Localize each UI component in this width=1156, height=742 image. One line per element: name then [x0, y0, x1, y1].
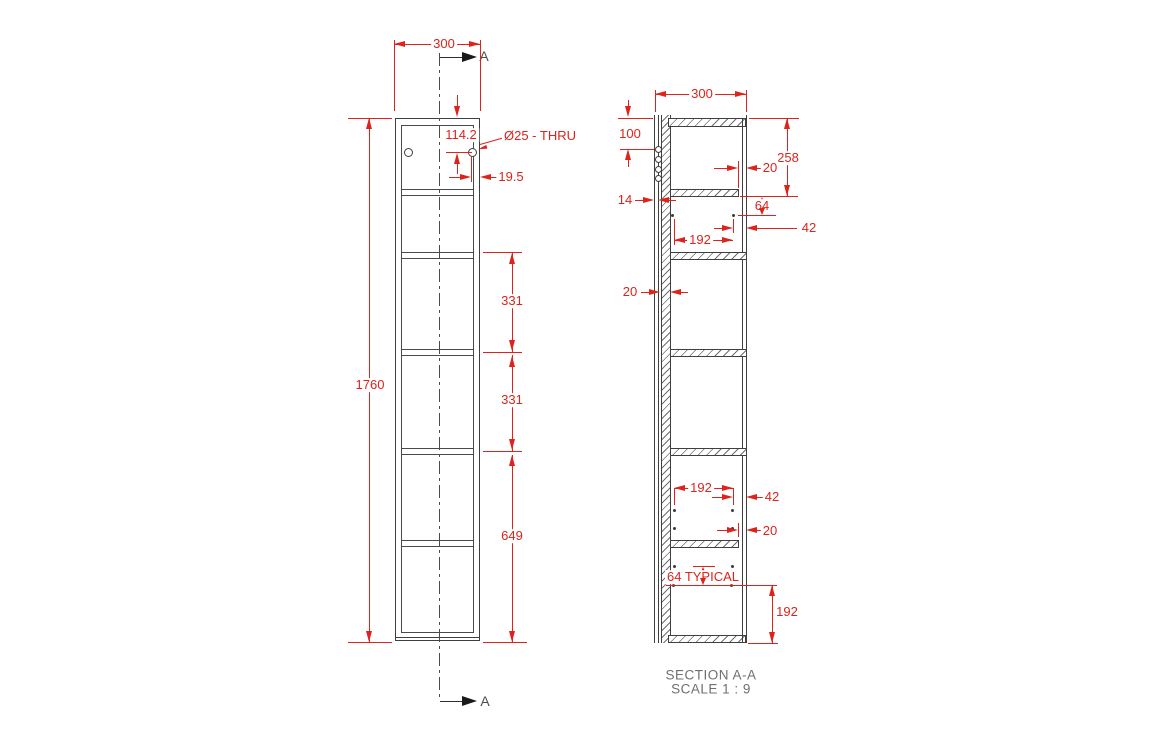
dim-arrow — [746, 527, 757, 533]
section-caption-title: SECTION A-A — [665, 668, 756, 683]
shelf-pin-hole — [731, 565, 734, 568]
dim-back-sheet: 14 — [616, 193, 634, 207]
dim-arrow — [643, 197, 654, 203]
dim-line — [714, 228, 722, 229]
section-back-panel-hatched — [661, 115, 671, 643]
dim-shelf-spacing-1: 331 — [499, 294, 525, 308]
dim-pin-front-upper: 42 — [800, 221, 818, 235]
ref-line — [666, 585, 777, 586]
ext-line — [748, 643, 778, 644]
back-panel-hole — [655, 166, 662, 173]
section-front-edge-line — [742, 118, 744, 643]
dim-arrow — [658, 197, 669, 203]
section-front-edge-line — [746, 115, 748, 643]
ext-line — [480, 40, 481, 111]
dim-arrow — [655, 91, 666, 97]
drawing-canvas: A A 300 1760 114.2 Ø25 - THRU 19.5 331 3… — [0, 0, 1156, 742]
dim-pin-spacing-lower: 192 — [688, 481, 714, 495]
section-shelf-hatched — [670, 252, 747, 260]
ext-line — [483, 642, 527, 643]
dim-hole-offset-top: 114.2 — [443, 128, 479, 142]
ext-line — [483, 252, 522, 253]
shelf-pin-hole — [732, 214, 735, 217]
back-panel-hole — [655, 175, 662, 182]
front-view-bottom-panel-line — [396, 637, 479, 638]
dim-arrow — [480, 174, 491, 180]
dim-arrow — [625, 149, 631, 160]
ext-line — [483, 352, 522, 353]
ext-line — [618, 118, 653, 119]
shelf-pin-hole — [673, 527, 676, 530]
dim-arrow — [509, 340, 515, 351]
dim-arrow — [674, 237, 685, 243]
shelf-pin-hole — [671, 214, 674, 217]
dim-line — [669, 200, 676, 201]
dim-arrow — [722, 494, 733, 500]
dim-pin-front-lower: 42 — [763, 490, 781, 504]
dim-arrow — [769, 632, 775, 643]
dim-arrow — [366, 118, 372, 129]
shelf-pin-hole — [673, 565, 676, 568]
dim-arrow — [469, 41, 480, 47]
back-panel-hole — [655, 156, 662, 163]
dim-arrow — [722, 225, 733, 231]
dim-line — [681, 292, 688, 293]
section-arrow-bottom-icon — [462, 696, 477, 706]
dim-pin-to-bottom: 192 — [774, 605, 800, 619]
dim-front-width: 300 — [431, 37, 457, 51]
ext-line — [394, 40, 395, 111]
dim-arrow — [727, 527, 738, 533]
section-arrow-line-top — [440, 57, 462, 59]
dim-arrow — [769, 585, 775, 596]
mounting-hole-left — [404, 148, 413, 157]
dim-arrow — [509, 439, 515, 450]
dim-arrow — [509, 253, 515, 264]
back-panel-hole — [655, 146, 662, 153]
dim-line — [712, 497, 722, 498]
dim-back-panel: 20 — [621, 285, 639, 299]
dim-front-height: 1760 — [354, 378, 387, 392]
dim-arrow — [674, 485, 685, 491]
dim-arrow — [366, 631, 372, 642]
dim-arrow — [784, 185, 790, 196]
section-label-bottom: A — [479, 694, 490, 708]
ext-line — [483, 451, 522, 452]
ext-line — [674, 488, 675, 505]
dim-arrow — [625, 106, 631, 117]
section-arrow-top-icon — [462, 52, 477, 62]
dim-line — [717, 530, 727, 531]
front-view-inner-outline — [401, 125, 474, 633]
dim-arrow — [722, 237, 733, 243]
ref-line — [738, 215, 776, 216]
dim-arrow — [454, 153, 460, 164]
dim-arrow — [460, 174, 471, 180]
dim-line — [449, 177, 460, 178]
dim-arrow — [735, 91, 746, 97]
dim-line — [628, 160, 629, 167]
dim-shelf-setback-upper: 20 — [761, 161, 779, 175]
section-top-panel-hatched — [668, 118, 746, 127]
shelf-pin-hole — [731, 509, 734, 512]
dim-shelf-spacing-2: 331 — [499, 393, 525, 407]
section-shelf-hatched — [670, 189, 739, 197]
section-bottom-panel-hatched — [668, 635, 746, 644]
dim-line — [457, 164, 458, 174]
dim-hole-offset-side: 19.5 — [496, 170, 525, 184]
dim-arrow — [509, 356, 515, 367]
section-back-sheet-line — [654, 115, 655, 643]
dim-hole-line-top: 100 — [617, 127, 643, 141]
dim-pin-spacing-upper: 192 — [687, 233, 713, 247]
dim-arrow — [727, 165, 738, 171]
dim-line — [512, 455, 513, 642]
ref-line — [740, 196, 798, 197]
section-caption-scale: SCALE 1 : 9 — [671, 682, 751, 697]
dim-line — [457, 95, 458, 106]
dim-arrow — [746, 494, 757, 500]
dim-line — [714, 168, 727, 169]
ref-line — [620, 149, 654, 150]
dim-hole-callout: Ø25 - THRU — [502, 129, 578, 143]
dim-arrow — [394, 41, 405, 47]
section-shelf-hatched — [670, 349, 747, 357]
section-arrow-line-bottom — [440, 701, 462, 703]
dim-arrow — [746, 165, 757, 171]
dim-arrow — [784, 118, 790, 129]
dim-bottom-section: 649 — [499, 529, 525, 543]
dim-arrow — [509, 631, 515, 642]
dim-line — [757, 228, 797, 229]
section-back-sheet-line — [658, 115, 659, 643]
section-cut-centerline — [439, 53, 440, 697]
dim-arrow — [722, 485, 733, 491]
dim-arrow — [746, 225, 757, 231]
dim-arrow — [454, 106, 460, 117]
shelf-pin-hole — [673, 509, 676, 512]
dim-arrow — [670, 289, 681, 295]
dim-shelf-setback-lower: 20 — [761, 524, 779, 538]
section-shelf-hatched — [670, 448, 747, 456]
dim-section-width: 300 — [689, 87, 715, 101]
dim-arrow — [509, 455, 515, 466]
dim-line — [641, 292, 649, 293]
dim-arrow — [649, 289, 660, 295]
section-shelf-hatched — [670, 540, 739, 548]
ext-line — [749, 118, 799, 119]
